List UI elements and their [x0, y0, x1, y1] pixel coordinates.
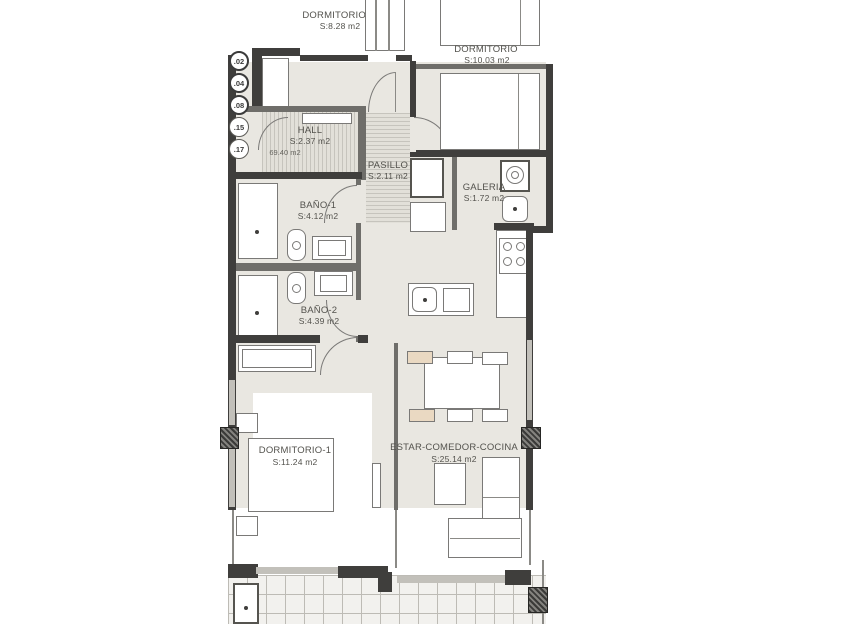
terrace-planter-icon — [233, 583, 259, 624]
shower1-drain — [255, 230, 259, 234]
window-right — [527, 340, 532, 420]
wall-pasillo-right-1 — [410, 61, 416, 117]
room-label-bano1: BAÑO-1 — [295, 201, 341, 211]
terrace-planter-dot — [244, 606, 248, 610]
fridge-icon — [410, 158, 444, 198]
unit-badge-15: .15 — [229, 117, 249, 137]
window-left-2 — [229, 449, 235, 507]
nightstand1-icon — [236, 413, 258, 433]
tv-stand-icon — [434, 463, 466, 505]
unit-badge-08: .08 — [229, 95, 249, 115]
wall-hall-pasillo — [358, 106, 366, 180]
wall-banos-right-1 — [356, 179, 361, 185]
upper-wardrobe-icon — [365, 0, 405, 51]
terrace-window-right — [397, 576, 507, 583]
wall-right-upper — [546, 64, 553, 232]
galeria-sink-drain — [513, 207, 517, 211]
chair-top-mid — [447, 351, 473, 364]
column-marker-right — [521, 427, 541, 449]
upper-bed-icon — [440, 0, 540, 46]
wall-dorm-galeria — [416, 150, 553, 157]
terrace-pier-mid — [378, 572, 392, 592]
floor-plan: DORMITORIO -3 S:8.28 m2 DORMITORIO S:10.… — [0, 0, 856, 624]
wall-stub-right — [388, 0, 390, 51]
column-marker-left — [220, 427, 239, 449]
vanity2-basin — [320, 275, 347, 292]
unit-badge-02: .02 — [229, 51, 249, 71]
counter-module-icon — [443, 288, 470, 312]
shower2-drain — [255, 311, 259, 315]
room-area-dormitorio1: S:11.24 m2 — [253, 458, 337, 467]
burner-3 — [503, 257, 512, 266]
shower1-icon — [238, 183, 278, 259]
wall-stub-left — [375, 0, 377, 51]
upper-bed-pillow-line — [520, 0, 521, 46]
room-label-pasillo: PASILLO — [366, 161, 410, 171]
window-left-1 — [229, 380, 235, 425]
wall-galeria-left — [452, 157, 457, 230]
entry-closet-icon — [262, 58, 289, 108]
room-label-galeria: GALERIA — [461, 183, 507, 193]
wall-banos-right-2 — [356, 223, 361, 300]
kitchen-sink-drain — [423, 298, 427, 302]
room-area-hall: S:2.37 m2 — [280, 137, 340, 146]
terrace-door-leaf — [372, 463, 381, 508]
chair-bottom-left — [409, 409, 435, 422]
chair-bottom-right — [482, 409, 508, 422]
unit-badge-04: .04 — [229, 73, 249, 93]
chair-top-right — [482, 352, 508, 365]
room-area-bano1: S:4.12 m2 — [294, 212, 342, 221]
total-area-label: 69.40 m2 — [264, 149, 306, 157]
room-label-dormitorio1: DORMITORIO-1 — [253, 446, 337, 456]
room-label-hall: HALL — [285, 126, 335, 136]
room-label-dormitorio-top: DORMITORIO — [450, 45, 522, 55]
toilet2-bowl — [292, 284, 301, 293]
wall-hall-bano1 — [228, 172, 362, 179]
room-label-bano2: BAÑO-2 — [296, 306, 342, 316]
bed-pillow-line — [518, 74, 519, 149]
unit-badge-17: .17 — [229, 139, 249, 159]
wall-dorm1-right-thin — [395, 510, 397, 568]
tall-cabinet-icon — [410, 202, 446, 232]
column-marker-terrace — [528, 587, 548, 613]
room-area-estar: S:25.14 m2 — [390, 455, 518, 464]
washing-machine-drum-inner — [511, 171, 519, 179]
burner-1 — [503, 242, 512, 251]
room-area-galeria: S:1.72 m2 — [461, 194, 507, 203]
kitchen-counter-edge — [494, 223, 534, 230]
wall-banos-divider — [236, 263, 360, 271]
terrace-wall-right — [505, 570, 531, 585]
wall-top-1 — [300, 55, 368, 61]
nightstand2-icon — [236, 516, 258, 536]
entry-door-leaf — [395, 72, 396, 112]
hall-doormat-icon — [302, 113, 352, 124]
wall-top-right — [412, 64, 553, 69]
burner-4 — [516, 257, 525, 266]
shower2-icon — [238, 275, 278, 337]
wall-hall-top — [236, 106, 362, 112]
vanity1-basin — [318, 240, 346, 256]
chair-top-left — [407, 351, 433, 364]
terrace-wall-left-pier — [228, 564, 258, 578]
sofa-seam-1 — [483, 497, 519, 498]
chair-bottom-mid — [447, 409, 473, 422]
wall-left-thin — [232, 510, 234, 565]
room-area-pasillo: S:2.11 m2 — [366, 172, 410, 181]
wall-right-thin — [529, 510, 531, 565]
wardrobe-inner — [242, 349, 312, 368]
room-label-estar: ESTAR-COMEDOR-COCINA — [390, 443, 518, 453]
burner-2 — [516, 242, 525, 251]
wall-dorm1-top-1 — [228, 335, 320, 343]
bed-icon — [440, 73, 540, 150]
sofa-seam-2 — [450, 538, 520, 539]
toilet1-bowl — [292, 241, 301, 250]
wall-top-closet-v — [252, 48, 262, 110]
room-area-bano2: S:4.39 m2 — [295, 317, 343, 326]
terrace-window-left — [256, 567, 340, 574]
wall-dorm1-right — [394, 343, 398, 510]
wall-dorm1-top-2 — [358, 335, 368, 343]
